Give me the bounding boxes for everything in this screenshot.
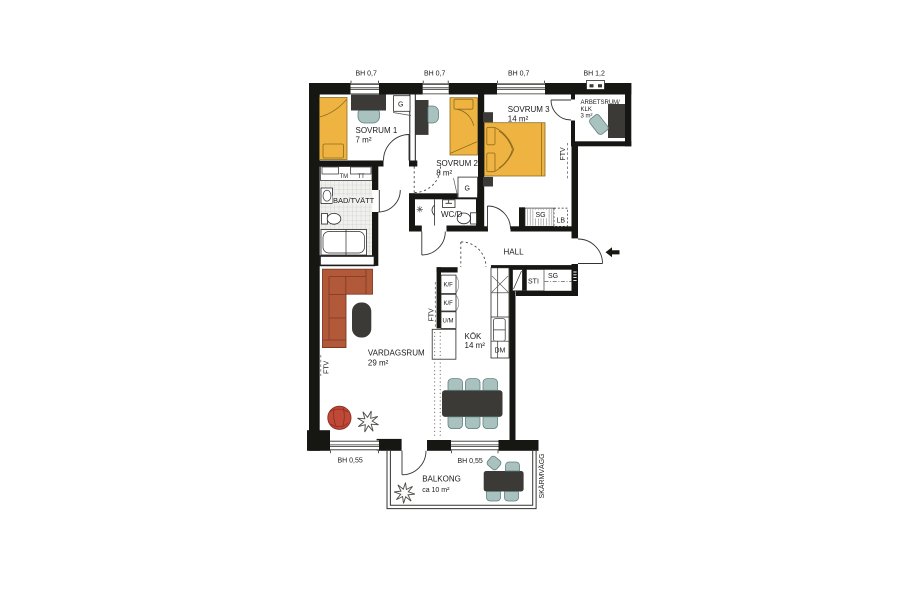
svg-text:BH 0,7: BH 0,7 bbox=[424, 71, 446, 78]
svg-text:DM: DM bbox=[495, 348, 506, 355]
svg-text:K/F: K/F bbox=[444, 283, 454, 289]
svg-text:BH 1,2: BH 1,2 bbox=[584, 71, 606, 78]
svg-text:8 m²: 8 m² bbox=[436, 169, 452, 178]
svg-text:VARDAGSRUM: VARDAGSRUM bbox=[368, 349, 425, 358]
svg-text:WC/D: WC/D bbox=[441, 210, 463, 219]
svg-text:FTV: FTV bbox=[324, 360, 331, 374]
svg-text:FTV: FTV bbox=[428, 308, 435, 322]
svg-text:SG: SG bbox=[548, 273, 558, 280]
svg-text:SOVRUM 1: SOVRUM 1 bbox=[356, 126, 398, 135]
svg-text:TM: TM bbox=[340, 174, 349, 180]
svg-text:TT: TT bbox=[358, 174, 366, 180]
svg-text:BH 0,7: BH 0,7 bbox=[508, 71, 530, 78]
svg-text:BALKONG: BALKONG bbox=[422, 475, 461, 484]
svg-text:3 m²: 3 m² bbox=[581, 114, 593, 120]
svg-text:ARBETSRUM/: ARBETSRUM/ bbox=[581, 100, 621, 106]
svg-text:K/F: K/F bbox=[444, 301, 454, 307]
svg-text:G: G bbox=[398, 102, 403, 109]
svg-text:U/M: U/M bbox=[443, 319, 454, 325]
svg-text:SKÄRMVÄGG: SKÄRMVÄGG bbox=[538, 453, 546, 498]
svg-text:BH 0,7: BH 0,7 bbox=[356, 71, 378, 78]
svg-text:STI: STI bbox=[528, 279, 539, 286]
svg-text:7 m²: 7 m² bbox=[356, 136, 372, 145]
svg-text:G: G bbox=[465, 186, 470, 193]
svg-text:BH 0,55: BH 0,55 bbox=[458, 458, 483, 465]
svg-text:29 m²: 29 m² bbox=[368, 359, 389, 368]
svg-text:KLK: KLK bbox=[581, 107, 592, 113]
svg-text:14 m²: 14 m² bbox=[465, 341, 486, 350]
svg-text:LB: LB bbox=[557, 218, 566, 225]
svg-text:SOVRUM 3: SOVRUM 3 bbox=[508, 105, 550, 114]
svg-text:SG: SG bbox=[536, 212, 546, 219]
svg-text:KÖK: KÖK bbox=[465, 332, 483, 341]
svg-text:SOVRUM 2: SOVRUM 2 bbox=[436, 159, 478, 168]
svg-text:BH 0,55: BH 0,55 bbox=[338, 458, 363, 465]
svg-text:14 m²: 14 m² bbox=[508, 114, 529, 123]
svg-text:BAD/TVÄTT: BAD/TVÄTT bbox=[333, 196, 375, 205]
svg-text:ca 10 m²: ca 10 m² bbox=[422, 487, 450, 494]
svg-text:HALL: HALL bbox=[504, 248, 525, 257]
svg-text:FTV: FTV bbox=[560, 147, 567, 161]
